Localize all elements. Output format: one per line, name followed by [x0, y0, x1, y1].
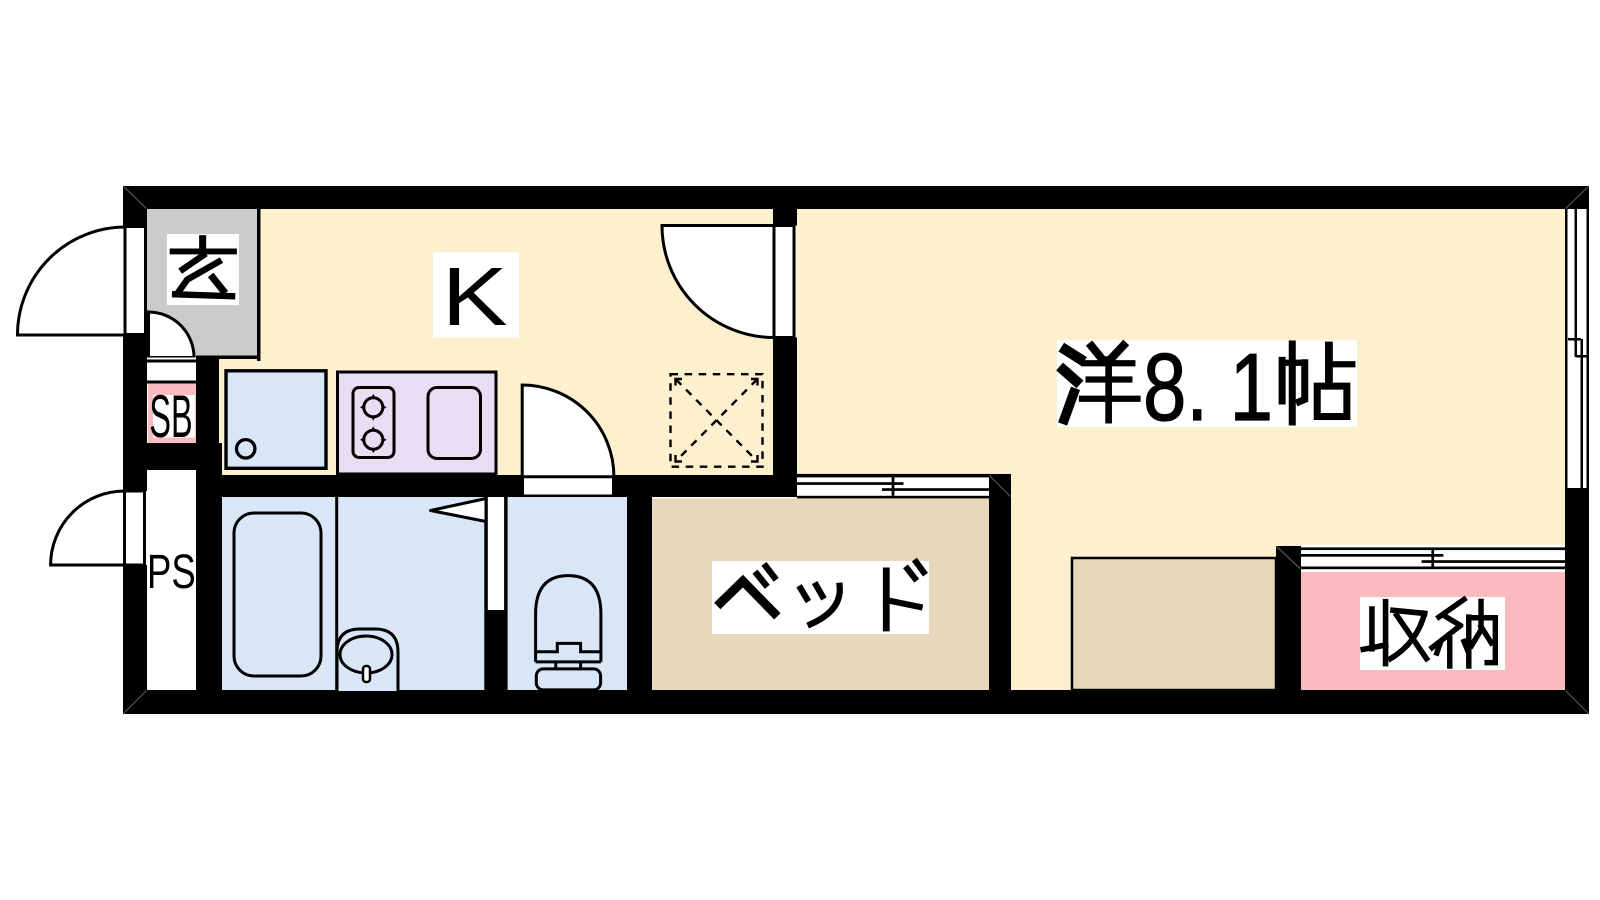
svg-text:K: K	[442, 250, 508, 343]
svg-text:8. 1: 8. 1	[1143, 334, 1273, 441]
svg-text:SB: SB	[149, 383, 192, 450]
svg-text:PS: PS	[147, 545, 196, 599]
